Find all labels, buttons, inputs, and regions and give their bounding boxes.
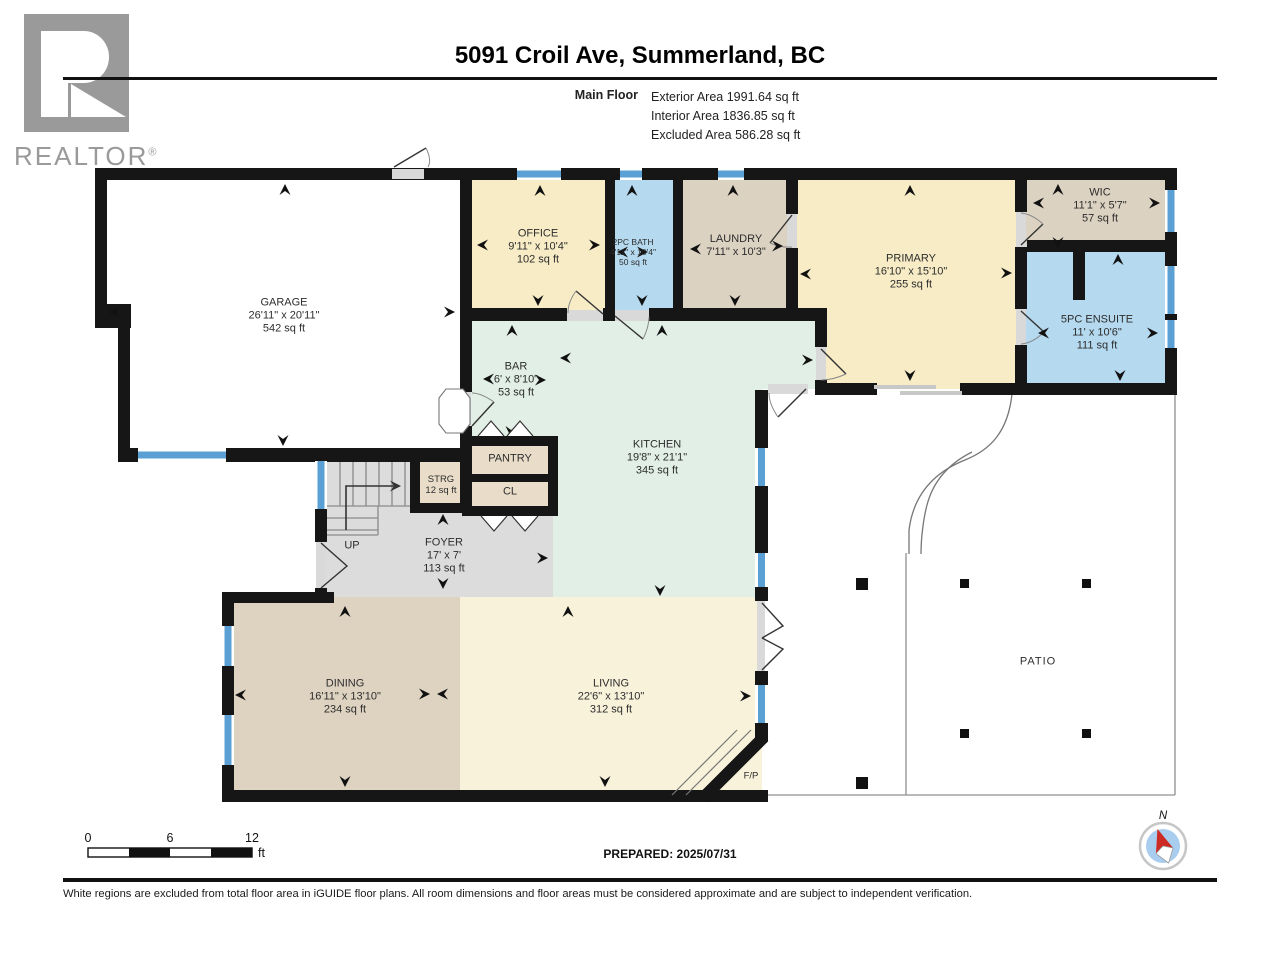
room-label-wic: WIC11'1" x 5'7"57 sq ft	[1073, 187, 1126, 226]
room-label-foyer: FOYER17' x 7'113 sq ft	[423, 537, 464, 576]
scale-bar	[88, 848, 252, 857]
scale-tick-6: 6	[167, 831, 174, 845]
scale-tick-0: 0	[85, 831, 92, 845]
room-label-laundry: LAUNDRY7'11" x 10'3"	[706, 233, 766, 259]
room-label-kitchen: KITCHEN19'8" x 21'1"345 sq ft	[627, 439, 687, 478]
room-label-primary: PRIMARY16'10" x 15'10"255 sq ft	[875, 253, 948, 292]
room-label-storage: STRG12 sq ft	[425, 474, 456, 496]
room-label-garage: GARAGE26'11" x 20'11"542 sq ft	[249, 297, 320, 336]
prepared-date: PREPARED: 2025/07/31	[500, 847, 840, 861]
room-label-living: LIVING22'6" x 13'10"312 sq ft	[578, 678, 644, 717]
bar-door-arch	[439, 389, 470, 433]
compass-icon	[1140, 823, 1186, 869]
floorplan-svg	[0, 0, 1280, 960]
compass-north-label: N	[1159, 810, 1167, 822]
room-label-office: OFFICE9'11" x 10'4"102 sq ft	[508, 228, 568, 267]
footer-disclaimer: White regions are excluded from total fl…	[63, 888, 1223, 900]
scale-tick-12: 12	[245, 831, 259, 845]
room-label-ensuite: 5PC ENSUITE11' x 10'6"111 sq ft	[1061, 314, 1133, 353]
room-label-pantry: PANTRY	[488, 453, 532, 466]
floorplan-page: REALTOR® 5091 Croil Ave, Summerland, BC …	[0, 0, 1280, 960]
room-label-bath: 2PC BATH4'11" x 10'4"50 sq ft	[610, 237, 656, 267]
room-label-bar: BAR6' x 8'10"53 sq ft	[494, 361, 538, 400]
room-label-closet: CL	[503, 486, 517, 499]
room-label-fireplace: F/P	[744, 771, 759, 782]
room-label-up: UP	[344, 540, 359, 553]
scale-unit-label: ft	[258, 846, 265, 860]
room-label-dining: DINING16'11" x 13'10"234 sq ft	[309, 678, 381, 717]
room-label-patio: PATIO	[1020, 656, 1056, 669]
